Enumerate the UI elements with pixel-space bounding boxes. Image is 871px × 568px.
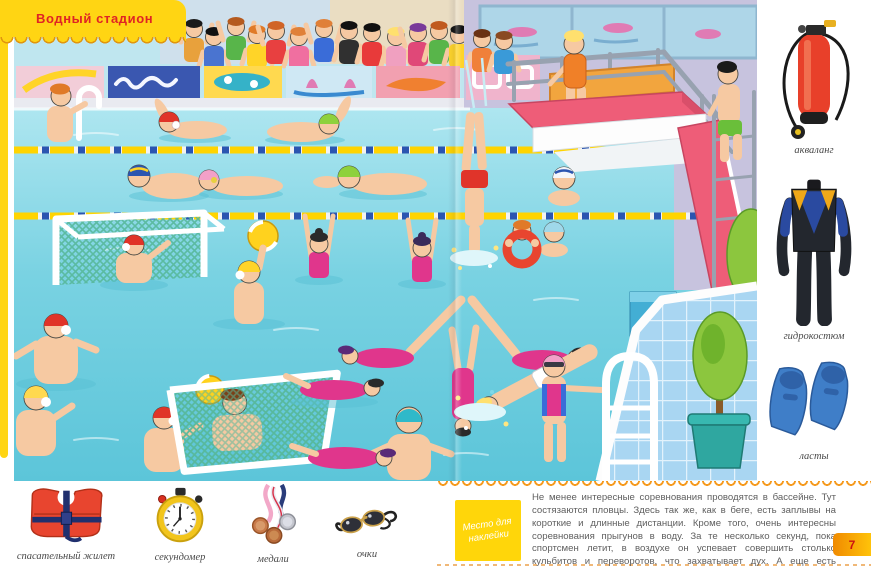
pool-illustration <box>14 0 759 481</box>
bottom-item-goggles: очки <box>327 498 407 560</box>
sidebar-item-wetsuit: гидрокостюм <box>757 166 871 342</box>
book-spread: Водный стадион акваланг <box>0 0 871 568</box>
bottom-item-medals: медали <box>238 483 308 565</box>
life-vest-label: спасательный жилет <box>16 551 116 562</box>
page-number-tab: 7 <box>833 533 871 556</box>
sticker-placeholder: Место для наклейки <box>455 500 521 561</box>
stopwatch-image <box>145 487 215 545</box>
goggles-image <box>327 498 407 542</box>
fins-image <box>762 358 866 446</box>
page-edge-strip <box>0 0 8 458</box>
wetsuit-label: гидрокостюм <box>757 331 871 342</box>
page-title-tab: Водный стадион <box>0 0 186 37</box>
wetsuit-image <box>759 166 869 326</box>
scuba-tank-image <box>762 20 866 140</box>
bottom-item-stopwatch: секундомер <box>145 487 215 563</box>
page-title: Водный стадион <box>0 0 186 37</box>
pool-scene <box>14 0 757 481</box>
sidebar-item-scuba: акваланг <box>757 20 871 156</box>
medals-image <box>238 483 308 547</box>
stopwatch-label: секундомер <box>145 552 215 563</box>
sticker-label: Место для наклейки <box>459 515 518 546</box>
bottom-item-life-vest: спасательный жилет <box>16 486 116 562</box>
title-tab-scallop-edge <box>0 37 186 48</box>
goggles-label: очки <box>327 549 407 560</box>
page-number: 7 <box>849 538 856 552</box>
scallop-border <box>437 481 871 492</box>
description-paragraph: Не менее интересные соревнования проводя… <box>532 492 836 568</box>
medals-label: медали <box>238 554 308 565</box>
scuba-label: акваланг <box>757 145 871 156</box>
page-fold <box>448 0 462 481</box>
sidebar-item-fins: ласты <box>757 358 871 462</box>
fins-label: ласты <box>757 451 871 462</box>
life-vest-image <box>16 486 116 544</box>
